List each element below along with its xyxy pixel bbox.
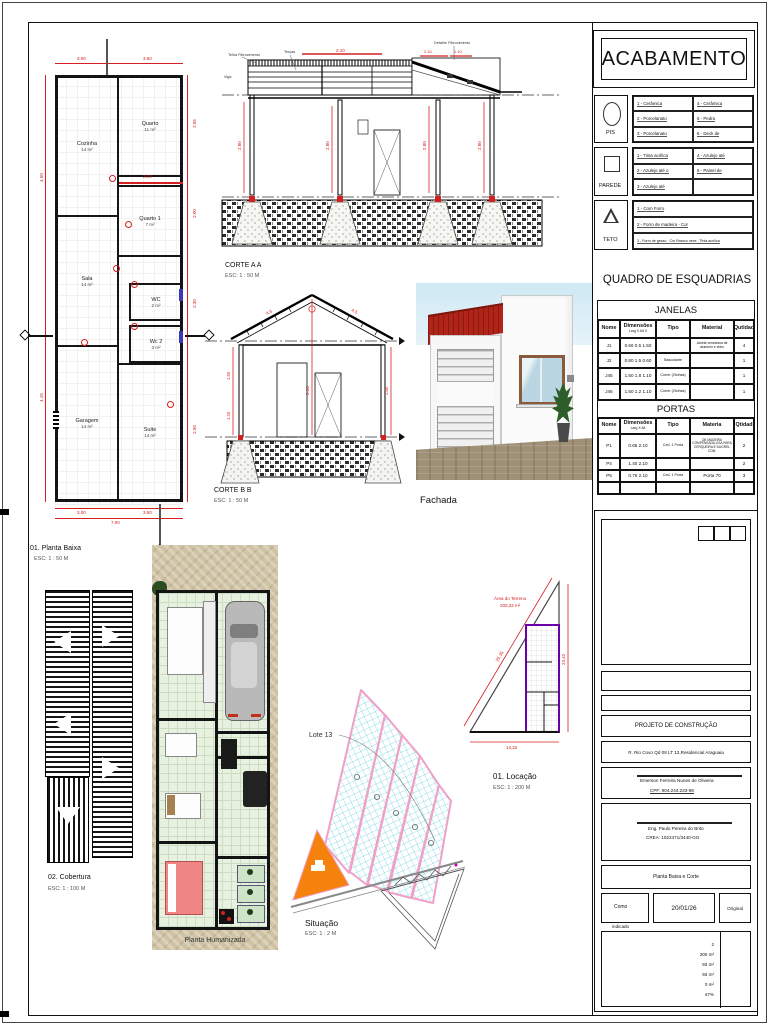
teto-symbol-box: TETO xyxy=(594,200,628,250)
stamp-square xyxy=(698,526,714,541)
legend-entry: 3 - Azulejo até xyxy=(637,184,665,190)
legend-entry: 1 - Com Forro xyxy=(637,206,664,212)
planta-humanizada: Planta Humanizada xyxy=(152,545,278,950)
fachada-title: Fachada xyxy=(420,495,457,506)
janelas-row: J2 0.80 1.5 0.60 Basculante 1 xyxy=(598,353,754,368)
section-marker-line xyxy=(159,504,161,546)
cell: Porta 70 xyxy=(690,470,734,482)
wall xyxy=(159,718,217,721)
cell: 0.66 0.5 1.50 xyxy=(620,338,656,353)
planta-baixa-drawing: Cozinha 14 m² Quarto 11 m² Quarto 1 7 m²… xyxy=(55,75,185,505)
dim-label: 2.80 xyxy=(477,141,482,150)
cell: P5 xyxy=(598,470,620,482)
wall xyxy=(159,841,217,844)
cell: J46 xyxy=(598,384,620,400)
area-value: 93 m² xyxy=(602,970,714,980)
signature-line xyxy=(637,822,732,824)
terreno-area-value: 200,32 m² xyxy=(500,603,521,608)
dim-label: 2.00 xyxy=(192,209,197,218)
window xyxy=(519,355,565,405)
note-tercas: Terças xyxy=(284,50,295,54)
cobertura-scale: ESC: 1 : 100 M xyxy=(48,886,85,892)
door-tag xyxy=(81,339,88,346)
sheet-name-row: Planta Baixa e Corte xyxy=(601,865,751,889)
date-cell: 20/01/26 xyxy=(653,893,715,923)
square-icon xyxy=(604,156,620,172)
pis-symbol-box: PIS xyxy=(594,95,628,143)
pillow xyxy=(167,795,175,815)
pis-label: PIS xyxy=(606,130,615,136)
portas-row: P1 0.66 2.10 Ced. 1 Porta DE MADEIRA COM… xyxy=(598,434,754,458)
title-block: PROJETO DE CONSTRUÇÃO R. Rio Covo Qd 08 … xyxy=(594,510,758,1012)
corte-aa-scale: ESC: 1 : 50 M xyxy=(225,273,259,279)
sheet-name: Planta Baixa e Corte xyxy=(653,874,699,880)
lote-13-label: Lote 13 xyxy=(309,732,332,739)
dim-label: 2.10 xyxy=(336,48,345,53)
col-header-sub: Larg X Alt xyxy=(631,427,646,431)
cell: 0.80 1.5 0.60 xyxy=(620,353,656,368)
window-mark xyxy=(179,331,183,343)
note-detalhe: Detalhe Fibrocimento xyxy=(434,41,470,45)
col-header: Qutidad xyxy=(734,320,754,338)
room-wc: WC 2 m² xyxy=(129,283,183,321)
cell: 4 xyxy=(734,338,754,353)
humanizada-plan xyxy=(156,590,270,930)
room-suite: Suite 14 m² xyxy=(117,363,183,502)
area-value: 2 xyxy=(602,940,714,950)
engineer-name: Eng. Paulo Pereira do Brito xyxy=(648,826,704,831)
drawing-sheet: Cozinha 14 m² Quarto 11 m² Quarto 1 7 m²… xyxy=(0,0,768,1024)
date-value: 20/01/26 xyxy=(671,905,696,912)
janelas-table: JANELAS Nome Dimensões Larg X Alt X Tipo… xyxy=(597,300,755,401)
stamp-square xyxy=(714,526,730,541)
sofa xyxy=(243,771,267,807)
bed xyxy=(167,607,203,675)
situacao-drawing: Lote 13 xyxy=(283,655,483,955)
section-marker-line xyxy=(185,335,205,337)
esquadrias-title: QUADRO DE ESQUADRIAS xyxy=(598,274,756,286)
areas-divider xyxy=(720,932,721,1008)
cell xyxy=(734,482,754,494)
car xyxy=(225,601,265,721)
dim-label: 2.00 xyxy=(143,174,152,179)
cell: 2 xyxy=(734,458,754,470)
tv-bench xyxy=(221,739,237,769)
cell: J1 xyxy=(598,338,620,353)
copy-value: Original xyxy=(727,906,743,911)
cell: 0.76 2.10 xyxy=(620,470,656,482)
cell: 2 xyxy=(734,434,754,458)
humanizada-label-strip: Planta Humanizada xyxy=(152,930,278,950)
wall xyxy=(217,731,270,734)
room-area: 7 m² xyxy=(146,222,155,227)
cell: 1 xyxy=(734,353,754,368)
cell xyxy=(620,482,656,494)
legend-entry: 5 - Painel de xyxy=(697,168,722,174)
cell xyxy=(690,353,734,368)
cell xyxy=(690,458,734,470)
circle-icon xyxy=(603,102,621,126)
dim-line xyxy=(55,63,119,64)
col-header: Nome xyxy=(598,418,620,434)
dim-line xyxy=(187,75,188,502)
pis-legend-table: 1 - Cerâmica 4 - Cerâmica 2 - Porcelanat… xyxy=(632,95,754,143)
door-tag xyxy=(125,221,132,228)
room-wc2: Wc 2 3 m² xyxy=(129,325,183,363)
cell xyxy=(656,338,690,353)
legend-entry: 2 - Forro de madeira - Cor xyxy=(637,222,688,228)
portas-row: P5 0.76 2.10 Ced. 1 Porta Porta 70 3 xyxy=(598,470,754,482)
dim-label: 3.50 xyxy=(143,510,152,515)
dim-label: 2.10 xyxy=(424,49,433,54)
door-tag xyxy=(113,265,120,272)
cell: P1 xyxy=(598,434,620,458)
fachada-render xyxy=(416,283,592,483)
address-row: R. Rio Covo Qd 08 LT 13,Residencial Arag… xyxy=(601,741,751,763)
col-header: Dimensões Larg X Alt xyxy=(620,418,656,434)
acabamento-title: ACABAMENTO xyxy=(602,48,747,71)
wall-lamp xyxy=(567,375,574,382)
window-mullion xyxy=(540,358,542,402)
engineer-row: Eng. Paulo Pereira do Brito CREA: 102247… xyxy=(601,803,751,861)
counter xyxy=(203,601,216,703)
col-header: Material xyxy=(690,320,734,338)
slope-arrow-left xyxy=(54,713,71,735)
cell: 1.40 2.10 xyxy=(620,458,656,470)
wall xyxy=(217,856,270,859)
areas-list: 2 200 m² 93 m² 93 m² 0 m² 47% xyxy=(602,940,714,1001)
dim-label: 2.95 xyxy=(192,119,197,128)
area-value: 200 m² xyxy=(602,950,714,960)
signature-line xyxy=(637,775,742,777)
cell: J2 xyxy=(598,353,620,368)
locacao-title: 01. Locação xyxy=(493,772,537,781)
room-sala: Sala 14 m² xyxy=(55,215,119,347)
car-taillight xyxy=(251,714,261,717)
project-title: PROJETO DE CONSTRUÇÃO xyxy=(635,723,718,729)
legend-entry: 3 - Porcelanato xyxy=(637,131,667,137)
col-header: Tipo xyxy=(656,418,690,434)
planta-baixa-scale: ESC: 1 : 50 M xyxy=(34,556,68,562)
teto-label: TETO xyxy=(603,237,618,243)
dim-label: 14,32 xyxy=(506,745,518,750)
portas-header-row: Nome Dimensões Larg X Alt Tipo Materia Q… xyxy=(598,418,754,434)
desk xyxy=(165,733,197,757)
trim-mark xyxy=(0,509,9,515)
janelas-row: J46 1.50 1.2 1.10 Correr (2folhas) 1 xyxy=(598,384,754,400)
dim-label: 1.20 xyxy=(226,411,231,420)
dining-dot xyxy=(247,909,253,915)
scale-note: Como xyxy=(614,904,627,910)
cell: 1.50 1.8 1.10 xyxy=(620,368,656,384)
car-taillight xyxy=(228,714,238,717)
owner-row: Emerson Ferreira Nunes de Oliveira CPF: … xyxy=(601,767,751,799)
legend-entry: 2 - Porcelanato xyxy=(637,116,667,122)
janelas-row: J1 0.66 0.5 1.50 Janela veneziana de alu… xyxy=(598,338,754,353)
dim-label: 2.80 xyxy=(422,141,427,150)
slope-arrow-right xyxy=(102,625,119,647)
dim-label: 2.80 xyxy=(384,386,389,395)
dim-label: 23,42 xyxy=(561,653,566,665)
burner xyxy=(227,917,231,921)
dim-line xyxy=(55,518,183,519)
dim-line xyxy=(119,63,183,64)
legend-entry: 5 - Pedra xyxy=(697,116,715,122)
cell: 1 xyxy=(734,368,754,384)
door-tag xyxy=(109,175,116,182)
dim-label: 4.15 xyxy=(39,393,44,402)
plant-pot xyxy=(557,423,570,442)
room-quarto: Quarto 11 m² xyxy=(117,75,183,177)
portas-row: P4 1.40 2.10 2 xyxy=(598,458,754,470)
door-tag xyxy=(167,401,174,408)
dim-label: 1.50 xyxy=(226,371,231,380)
janelas-row: J45 1.50 1.8 1.10 Correr (2folhas) 1 xyxy=(598,368,754,384)
room-garagem: Garagem 14 m² xyxy=(55,345,119,502)
cell: Correr (2folhas) xyxy=(656,384,690,400)
legend-entry: 3 - Forro de gesso - Cor Branco neve , T… xyxy=(637,239,720,244)
window-mark xyxy=(179,289,183,301)
section-marker-line xyxy=(106,39,108,75)
legend-entry: 4 - Azulejo até xyxy=(697,153,725,159)
dim-label: 4.50 xyxy=(39,173,44,182)
owner-cpf: CPF: 904.244.233-86 xyxy=(650,788,694,794)
cell: J45 xyxy=(598,368,620,384)
portas-row-empty xyxy=(598,482,754,494)
room-cozinha: Cozinha 14 m² xyxy=(55,75,119,217)
janelas-title: JANELAS xyxy=(655,305,697,316)
cell xyxy=(656,458,690,470)
corte-aa-drawing: 2.80 2.80 2.80 2.80 2.10 2.10 1.10 Tel xyxy=(222,50,562,265)
stamp-area xyxy=(601,519,751,665)
car-roof xyxy=(231,642,257,688)
dim-label: 4.5 xyxy=(265,308,273,316)
dining-dot xyxy=(247,869,253,875)
situacao-title: Situação xyxy=(305,918,338,928)
roof-panel-left xyxy=(45,590,90,777)
scale-cell: Como indicado xyxy=(601,893,649,923)
bed-red xyxy=(165,861,203,915)
project-title-row: PROJETO DE CONSTRUÇÃO xyxy=(601,715,751,737)
situacao-scale: ESC: 1 : 2 M xyxy=(305,931,336,937)
stove xyxy=(219,909,234,924)
cell xyxy=(690,368,734,384)
empty-row xyxy=(601,695,751,711)
acabamento-title-box: ACABAMENTO xyxy=(601,38,747,80)
cell: 1.50 1.2 1.10 xyxy=(620,384,656,400)
col-header: Dimensões Larg X Alt X xyxy=(620,320,656,338)
dim-label: 1.10 xyxy=(454,49,463,54)
parede-symbol-box: PAREDE xyxy=(594,147,628,196)
portas-title: PORTAS xyxy=(657,404,695,415)
dim-label: 3.00 xyxy=(77,510,86,515)
dim-label: 2.30 xyxy=(192,299,197,308)
room-area: 11 m² xyxy=(144,127,155,132)
cell: P4 xyxy=(598,458,620,470)
dim-line xyxy=(45,75,46,290)
dining-dot xyxy=(247,889,253,895)
dim-label: 2.80 xyxy=(325,141,330,150)
dim-label: 2.80 xyxy=(237,141,242,150)
pillow xyxy=(168,864,176,912)
burner xyxy=(221,911,225,915)
locacao-scale: ESC: 1 : 200 M xyxy=(493,785,530,791)
cobertura-drawing xyxy=(40,585,150,885)
cell: DE MADEIRA COMPENSADA LISA PARA CERQUEIR… xyxy=(690,434,734,458)
dim-label: 3.50 xyxy=(143,56,152,61)
legend-entry: 4 - Cerâmica xyxy=(697,101,722,107)
cell: Janela veneziana de alumínio e vidro xyxy=(690,338,734,353)
car-windshield xyxy=(230,624,258,638)
room-area: 2 m² xyxy=(152,303,161,308)
legend-entry: 1 - Tinta acrílica xyxy=(637,153,668,159)
dim-line xyxy=(55,508,119,509)
portas-table: PORTAS Nome Dimensões Larg X Alt Tipo Ma… xyxy=(597,400,755,495)
corte-bb-drawing: 3.10 4.5 4.5 1.50 1.20 2.80 xyxy=(215,285,395,485)
dim-label: 4.5 xyxy=(351,307,359,315)
terreno-area-label: Área do Terreno xyxy=(494,595,527,601)
stamp-square xyxy=(730,526,746,541)
project-address: R. Rio Covo Qd 08 LT 13,Residencial Arag… xyxy=(628,750,724,755)
dim-label: 25,35 xyxy=(495,650,505,663)
area-value: 0 m² xyxy=(602,980,714,990)
room-area: 14 m² xyxy=(144,433,156,438)
trim-mark xyxy=(0,1011,9,1017)
bed-single xyxy=(165,793,201,819)
legend-entry: 2 - Azulejo até o xyxy=(637,168,669,174)
section-marker-line xyxy=(29,335,53,337)
copy-cell: Original xyxy=(719,893,751,923)
dim-label: 2.50 xyxy=(192,425,197,434)
cell: 1 xyxy=(734,384,754,400)
garage-gate-hatch xyxy=(53,411,59,429)
corte-bb-scale: ESC: 1 : 50 M xyxy=(214,498,248,504)
humanizada-title: Planta Humanizada xyxy=(184,937,245,944)
cell xyxy=(656,482,690,494)
triangle-icon-inner xyxy=(606,212,616,222)
dim-line xyxy=(119,508,183,509)
door-tag xyxy=(131,281,138,288)
cell: Basculante xyxy=(656,353,690,368)
area-value: 93 m² xyxy=(602,960,714,970)
janelas-header-row: Nome Dimensões Larg X Alt X Tipo Materia… xyxy=(598,320,754,338)
room-area: 14 m² xyxy=(81,147,93,152)
column-divider xyxy=(592,22,593,1016)
engineer-crea: CREA: 1022471/3440-GO xyxy=(646,835,699,840)
col-header: Materia xyxy=(690,418,734,434)
room-area: 14 m² xyxy=(81,282,93,287)
areas-box: 2 200 m² 93 m² 93 m² 0 m² 47% xyxy=(601,931,751,1007)
slope-arrow-left xyxy=(54,631,71,653)
dim-line xyxy=(119,182,183,184)
corte-aa-title: CORTE A A xyxy=(225,262,261,269)
dim-label: 3.00 xyxy=(77,56,86,61)
col-header: Tipo xyxy=(656,320,690,338)
col-header: Qtidad xyxy=(734,418,754,434)
cobertura-title: 02. Cobertura xyxy=(48,874,91,881)
parede-legend-table: 1 - Tinta acrílica 4 - Azulejo até 2 - A… xyxy=(632,147,754,196)
cell xyxy=(598,482,620,494)
door-tag xyxy=(131,323,138,330)
cell: Ced. 1 Porta xyxy=(656,434,690,458)
cell: 0.66 2.10 xyxy=(620,434,656,458)
owner-name: Emerson Ferreira Nunes de Oliveira xyxy=(640,778,714,783)
corte-bb-title: CORTE B B xyxy=(214,487,252,494)
cell: Correr (2folhas) xyxy=(656,368,690,384)
room-area: 14 m² xyxy=(81,424,93,429)
legend-entry: 1 - Cerâmica xyxy=(637,101,662,107)
scale-note2: indicado xyxy=(612,924,629,929)
room-area: 3 m² xyxy=(152,345,161,350)
teto-legend-table: 1 - Com Forro 2 - Forro de madeira - Cor… xyxy=(632,200,754,250)
dim-label: 3.10 xyxy=(305,386,310,395)
cell: Ced. 1 Porta xyxy=(656,470,690,482)
col-header: Nome xyxy=(598,320,620,338)
empty-row xyxy=(601,671,751,691)
note-viga: Viga xyxy=(224,75,232,79)
legend-entry: 6 - Deck de xyxy=(697,131,719,137)
parede-label: PAREDE xyxy=(599,183,621,189)
dim-label: 7.00 xyxy=(111,520,120,525)
dim-line xyxy=(45,290,46,502)
garage-door-band xyxy=(437,381,494,407)
cell: 3 xyxy=(734,470,754,482)
slope-arrow-down xyxy=(56,807,80,824)
planta-baixa-title: 01. Planta Baixa xyxy=(30,545,81,552)
area-value: 47% xyxy=(602,990,714,1000)
slope-arrow-right xyxy=(102,757,119,779)
note-telha: Telha Fibrocimento xyxy=(228,53,260,57)
col-header-sub: Larg X Alt X xyxy=(629,330,647,334)
cell xyxy=(690,482,734,494)
cell xyxy=(690,384,734,400)
